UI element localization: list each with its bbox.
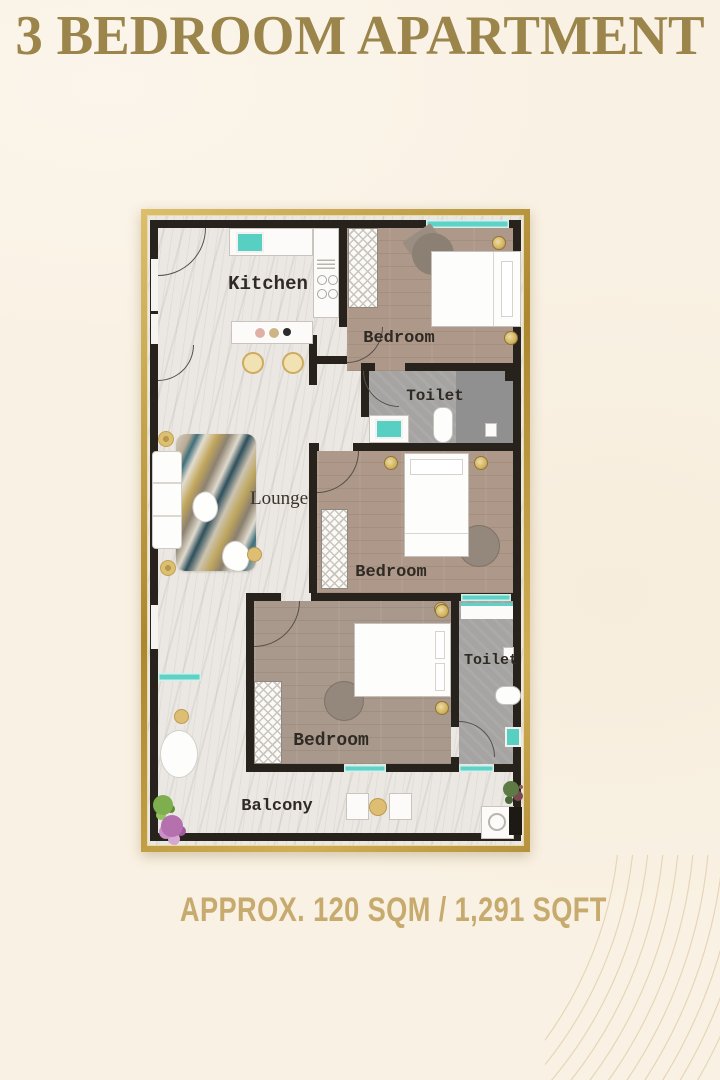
- window-sill-left-1: [151, 259, 158, 311]
- lounge-sofa: [152, 451, 182, 549]
- stove-burner-2: [328, 275, 338, 285]
- window-sill-left-2: [151, 314, 158, 344]
- window-balcony-left: [344, 765, 386, 772]
- door-arc-hall: [158, 345, 194, 381]
- knob-bedroom-top-1: [492, 236, 506, 250]
- wall-under-bedroom-mid-a: [246, 593, 281, 601]
- bed-top-foldline: [493, 252, 494, 326]
- window-bedroom-top: [426, 220, 509, 228]
- stove-burner-4: [328, 289, 338, 299]
- window-corridor-left: [158, 673, 201, 681]
- label-bedroom-top: Bedroom: [339, 329, 459, 348]
- plate-pink: [254, 327, 266, 339]
- corridor-gold-table: [174, 709, 189, 724]
- kitchen-stool-1: [242, 352, 264, 374]
- wall-under-bedroom-mid-b: [311, 593, 459, 601]
- wall-bottom: [150, 833, 521, 841]
- wall-bedroom-bottom-left: [246, 601, 254, 764]
- knob-bedroom-bottom-1: [435, 604, 449, 618]
- oval-table: [160, 730, 198, 778]
- floorplan-frame: Kitchen Bedroom Toilet Lounge Bedroom Be…: [141, 209, 530, 852]
- knob-bedroom-mid-1: [384, 456, 398, 470]
- wardrobe-bedroom-top: [348, 228, 378, 308]
- label-lounge: Lounge: [229, 488, 329, 510]
- wall-balcony-a: [246, 764, 344, 772]
- label-toilet-top: Toilet: [385, 387, 485, 405]
- plate-tan: [268, 327, 280, 339]
- knob-bedroom-bottom-2: [435, 701, 449, 715]
- bed-top-pillow: [501, 261, 513, 317]
- ceiling-fan-2: [160, 560, 176, 576]
- lounge-gold-table: [247, 547, 262, 562]
- bed-mid-pillow: [410, 459, 463, 475]
- wall-under-toilet-top-a: [309, 443, 319, 451]
- wc-toilet-top: [433, 407, 453, 443]
- kitchen-sink: [236, 232, 264, 253]
- bed-mid-foldline: [405, 533, 468, 534]
- balcony-chair-1: [346, 793, 369, 820]
- plant-green: [153, 795, 173, 815]
- stove-vent: [317, 259, 335, 269]
- sink-toilet-top: [375, 419, 403, 439]
- floorplan: Kitchen Bedroom Toilet Lounge Bedroom Be…: [147, 215, 524, 846]
- label-bedroom-bottom: Bedroom: [271, 731, 391, 751]
- ceiling-fan-1: [158, 431, 174, 447]
- wall-balcony-c: [494, 764, 513, 772]
- window-balcony-right: [459, 765, 494, 772]
- wall-under-bedroom-top-a: [361, 363, 375, 371]
- label-toilet-bottom: Toilet: [443, 652, 524, 669]
- balcony-gold-table: [369, 798, 387, 816]
- wall-under-toilet-top-b: [353, 443, 513, 451]
- kitchen-stool-2: [282, 352, 304, 374]
- plate-black: [283, 328, 291, 336]
- wall-under-bedroom-top-b: [405, 363, 521, 371]
- label-balcony: Balcony: [217, 797, 337, 816]
- plant-purple: [161, 815, 183, 837]
- page-title: 3 BEDROOM APARTMENT: [7, 0, 713, 72]
- plant-right: [503, 781, 519, 797]
- wall-right-pillar-a: [505, 363, 515, 381]
- wall-kitchen-bedroom: [339, 228, 347, 327]
- wall-bedroom-mid-left: [309, 451, 317, 593]
- knob-bedroom-mid-2: [474, 456, 488, 470]
- label-kitchen: Kitchen: [208, 273, 328, 295]
- knob-bedroom-top-2: [504, 331, 518, 345]
- label-bedroom-mid: Bedroom: [331, 563, 451, 582]
- sink-toilet-bottom: [505, 727, 521, 747]
- fixture-toilet-top: [485, 423, 497, 437]
- window-sill-left-3: [151, 605, 158, 649]
- door-arc-kitchen: [158, 228, 206, 276]
- washing-machine-drum: [488, 813, 506, 831]
- shower-toilet-bottom: [461, 603, 513, 619]
- plant-pot-right: [509, 807, 522, 835]
- window-toilet-bottom-top: [461, 594, 511, 601]
- wardrobe-bedroom-bottom: [254, 681, 282, 764]
- area-caption: APPROX. 120 SQM / 1,291 SQFT: [180, 889, 491, 931]
- wall-balcony-b: [386, 764, 459, 772]
- wall-kitchen-stub: [313, 356, 347, 364]
- balcony-chair-2: [389, 793, 412, 820]
- bathtub-toilet-bottom: [495, 686, 521, 705]
